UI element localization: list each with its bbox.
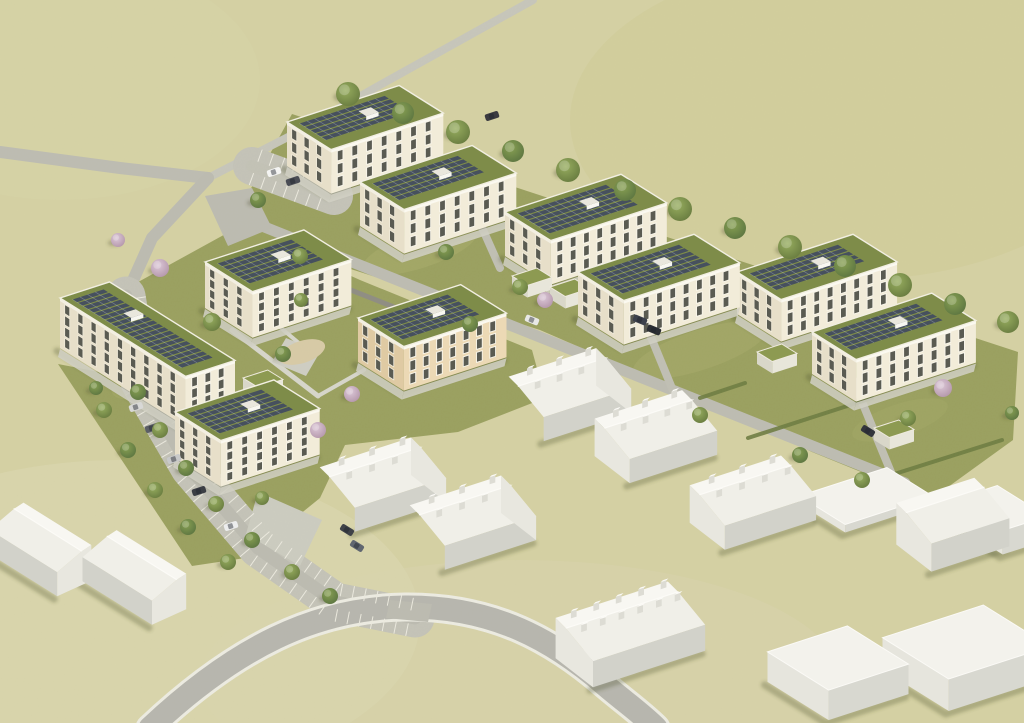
tree-foliage — [275, 346, 291, 362]
window — [437, 351, 442, 362]
window — [684, 297, 689, 308]
window — [477, 351, 482, 362]
tree — [900, 410, 916, 426]
tree-highlight — [559, 160, 570, 171]
tree-foliage — [250, 192, 266, 208]
tree-highlight — [671, 199, 682, 210]
window — [484, 186, 489, 197]
window — [710, 301, 715, 312]
window — [484, 212, 489, 223]
window — [670, 301, 675, 312]
window — [571, 263, 576, 274]
tree-highlight — [246, 534, 253, 541]
window — [828, 287, 833, 298]
tree-highlight — [539, 294, 546, 301]
tree-foliage — [151, 259, 169, 277]
window — [788, 325, 793, 336]
window — [854, 303, 859, 314]
window — [469, 217, 474, 228]
tree-foliage — [322, 588, 338, 604]
window — [410, 360, 415, 371]
tree-highlight — [781, 237, 792, 248]
window — [490, 334, 495, 345]
window — [814, 316, 819, 327]
tree-highlight — [113, 234, 119, 240]
window — [455, 222, 460, 233]
window — [477, 338, 482, 349]
tree-foliage — [934, 379, 952, 397]
tree-foliage — [220, 554, 236, 570]
window — [684, 284, 689, 295]
tree — [208, 496, 224, 512]
tree — [203, 313, 221, 331]
tree-highlight — [794, 449, 801, 456]
tree — [512, 279, 528, 295]
window — [946, 333, 951, 344]
window — [877, 380, 882, 391]
tree-foliage — [537, 292, 553, 308]
window — [637, 228, 642, 239]
window — [382, 149, 387, 160]
window — [890, 351, 895, 362]
window — [724, 284, 729, 295]
window — [841, 283, 846, 294]
window — [932, 337, 937, 348]
tree-foliage — [120, 442, 136, 458]
window — [637, 215, 642, 226]
window — [788, 300, 793, 311]
tree-foliage — [244, 532, 260, 548]
tree — [336, 82, 360, 106]
window — [411, 139, 416, 150]
window — [651, 211, 656, 222]
tree-highlight — [210, 498, 217, 505]
tree-foliage — [147, 482, 163, 498]
window — [192, 377, 197, 387]
tree — [220, 554, 236, 570]
tree-highlight — [257, 492, 263, 498]
window — [657, 318, 662, 329]
window — [410, 373, 415, 384]
tree — [244, 532, 260, 548]
window — [411, 152, 416, 163]
window — [697, 305, 702, 316]
tree-foliage — [203, 313, 221, 331]
tree-highlight — [1007, 407, 1013, 413]
window — [424, 343, 429, 354]
window — [382, 162, 387, 173]
tree-highlight — [286, 566, 293, 573]
tree — [462, 316, 478, 332]
window — [450, 334, 455, 345]
window — [814, 304, 819, 315]
window — [854, 291, 859, 302]
tree-highlight — [149, 484, 156, 491]
window — [724, 297, 729, 308]
tree — [692, 407, 708, 423]
tree-foliage — [130, 384, 146, 400]
window — [801, 296, 806, 307]
window — [440, 213, 445, 224]
window — [918, 354, 923, 365]
tree — [668, 197, 692, 221]
tree-foliage — [89, 381, 103, 395]
window — [425, 231, 430, 242]
tree — [250, 192, 266, 208]
tree-highlight — [464, 318, 471, 325]
blossom-tree — [344, 386, 360, 402]
tree-highlight — [891, 275, 902, 286]
tree-highlight — [947, 295, 957, 305]
tree-foliage — [512, 279, 528, 295]
window — [877, 368, 882, 379]
tree-foliage — [178, 460, 194, 476]
tree — [294, 293, 308, 307]
tree-foliage — [778, 235, 802, 259]
window — [854, 278, 859, 289]
tree-highlight — [936, 381, 944, 389]
window — [338, 150, 343, 161]
window — [469, 204, 474, 215]
window — [477, 325, 482, 336]
tree-foliage — [668, 197, 692, 221]
window — [352, 171, 357, 182]
window — [557, 267, 562, 278]
window — [411, 236, 416, 247]
tree-highlight — [449, 122, 460, 133]
window — [881, 270, 886, 281]
aerial-rendering-canvas — [0, 0, 1024, 723]
window — [440, 226, 445, 237]
window — [624, 232, 629, 243]
tree-foliage — [462, 316, 478, 332]
tree — [130, 384, 146, 400]
window — [828, 312, 833, 323]
window — [557, 254, 562, 265]
tree-highlight — [252, 194, 259, 201]
window — [710, 275, 715, 286]
blossom-tree — [151, 259, 169, 277]
window — [425, 205, 430, 216]
tree-foliage — [96, 402, 112, 418]
window — [464, 343, 469, 354]
window — [499, 207, 504, 218]
window — [352, 145, 357, 156]
tree — [284, 564, 300, 580]
window — [868, 286, 873, 297]
window — [597, 254, 602, 265]
tree-foliage — [944, 293, 966, 315]
window — [918, 367, 923, 378]
tree-highlight — [182, 521, 189, 528]
window — [584, 258, 589, 269]
tree-highlight — [727, 219, 737, 229]
tree — [834, 255, 856, 277]
tree — [292, 248, 308, 264]
tree — [854, 472, 870, 488]
window — [464, 356, 469, 367]
window — [219, 379, 224, 389]
window — [890, 376, 895, 387]
window — [881, 294, 886, 305]
window — [890, 363, 895, 374]
window — [697, 279, 702, 290]
window — [450, 347, 455, 358]
window — [426, 134, 431, 145]
window — [338, 163, 343, 174]
tree-highlight — [1000, 313, 1010, 323]
window — [657, 292, 662, 303]
tree — [556, 158, 580, 182]
blossom-tree — [537, 292, 553, 308]
tree — [120, 442, 136, 458]
tree — [178, 460, 194, 476]
window — [424, 369, 429, 380]
tree-foliage — [888, 273, 912, 297]
window — [367, 153, 372, 164]
tree — [275, 346, 291, 362]
window — [571, 250, 576, 261]
window — [469, 191, 474, 202]
window — [584, 232, 589, 243]
tree-foliage — [446, 120, 470, 144]
tree-highlight — [902, 412, 909, 419]
tree-foliage — [614, 179, 636, 201]
tree-highlight — [180, 462, 187, 469]
window — [651, 224, 656, 235]
tree-foliage — [792, 447, 808, 463]
tree — [997, 311, 1019, 333]
tree — [152, 422, 168, 438]
tree-foliage — [1005, 406, 1019, 420]
window — [863, 385, 868, 396]
site-plan-rendering: Aerial bird's-eye 3D architectural rende… — [0, 0, 1024, 723]
tree-highlight — [222, 556, 229, 563]
window — [424, 356, 429, 367]
window — [396, 144, 401, 155]
window — [959, 329, 964, 340]
window — [499, 194, 504, 205]
tree-foliage — [111, 233, 125, 247]
window — [946, 345, 951, 356]
tree-foliage — [724, 217, 746, 239]
tree-foliage — [392, 102, 414, 124]
window — [192, 388, 197, 398]
window — [624, 245, 629, 256]
tree-highlight — [154, 424, 161, 431]
window — [450, 360, 455, 371]
tree-highlight — [514, 281, 521, 288]
tree-foliage — [180, 519, 196, 535]
tree-foliage — [284, 564, 300, 580]
window — [684, 310, 689, 321]
tree-foliage — [997, 311, 1019, 333]
window — [490, 321, 495, 332]
tree — [614, 179, 636, 201]
window — [904, 346, 909, 357]
window — [657, 305, 662, 316]
tree-foliage — [336, 82, 360, 106]
window — [437, 338, 442, 349]
tree — [724, 217, 746, 239]
window — [863, 360, 868, 371]
window — [932, 350, 937, 361]
tree — [96, 402, 112, 418]
tree-highlight — [296, 294, 302, 300]
window — [801, 308, 806, 319]
window — [440, 200, 445, 211]
tree-highlight — [312, 424, 319, 431]
tree-highlight — [694, 409, 701, 416]
window — [597, 228, 602, 239]
tree-highlight — [98, 404, 105, 411]
tree — [392, 102, 414, 124]
tree-highlight — [277, 348, 284, 355]
window — [828, 299, 833, 310]
window — [437, 364, 442, 375]
window — [382, 136, 387, 147]
tree-highlight — [505, 142, 515, 152]
window — [426, 147, 431, 158]
window — [410, 347, 415, 358]
tree-highlight — [617, 181, 627, 191]
window — [788, 312, 793, 323]
window — [611, 237, 616, 248]
tree-highlight — [153, 261, 161, 269]
tree — [502, 140, 524, 162]
tree — [322, 588, 338, 604]
window — [426, 121, 431, 132]
window — [724, 271, 729, 282]
window — [651, 237, 656, 248]
window — [918, 342, 923, 353]
tree — [944, 293, 966, 315]
window — [411, 210, 416, 221]
window — [584, 245, 589, 256]
window — [841, 295, 846, 306]
tree-highlight — [205, 315, 213, 323]
window — [571, 237, 576, 248]
window — [367, 166, 372, 177]
window — [597, 241, 602, 252]
tree-foliage — [310, 422, 326, 438]
tree-foliage — [900, 410, 916, 426]
window — [877, 355, 882, 366]
tree — [888, 273, 912, 297]
window — [411, 126, 416, 137]
window — [206, 372, 211, 382]
window — [557, 241, 562, 252]
window — [352, 158, 357, 169]
window — [868, 299, 873, 310]
window — [630, 301, 635, 312]
tree — [147, 482, 163, 498]
tree-foliage — [344, 386, 360, 402]
blossom-tree — [934, 379, 952, 397]
tree — [89, 381, 103, 395]
window — [338, 176, 343, 187]
tree-foliage — [255, 491, 269, 505]
window — [219, 368, 224, 378]
window — [411, 223, 416, 234]
window — [868, 274, 873, 285]
tree — [446, 120, 470, 144]
tree-highlight — [395, 104, 405, 114]
window — [396, 157, 401, 168]
window — [814, 291, 819, 302]
blossom-tree — [310, 422, 326, 438]
tree-foliage — [692, 407, 708, 423]
window — [904, 371, 909, 382]
tree-foliage — [292, 248, 308, 264]
tree-highlight — [346, 388, 353, 395]
window — [455, 209, 460, 220]
window — [630, 327, 635, 338]
window — [697, 292, 702, 303]
window — [959, 341, 964, 352]
tree-highlight — [339, 84, 350, 95]
tree — [180, 519, 196, 535]
tree-highlight — [294, 250, 301, 257]
window — [624, 219, 629, 230]
window — [670, 314, 675, 325]
tree — [255, 491, 269, 505]
tree-foliage — [854, 472, 870, 488]
tree — [778, 235, 802, 259]
window — [946, 358, 951, 369]
window — [455, 196, 460, 207]
window — [932, 362, 937, 373]
window — [490, 347, 495, 358]
window — [801, 320, 806, 331]
window — [841, 307, 846, 318]
window — [881, 282, 886, 293]
window — [710, 288, 715, 299]
window — [644, 297, 649, 308]
window — [959, 353, 964, 364]
window — [499, 181, 504, 192]
tree — [792, 447, 808, 463]
tree — [1005, 406, 1019, 420]
window — [637, 241, 642, 252]
tree — [438, 244, 454, 260]
window — [863, 372, 868, 383]
window — [396, 131, 401, 142]
window — [367, 140, 372, 151]
tree-highlight — [91, 382, 97, 388]
tree-foliage — [438, 244, 454, 260]
tree-foliage — [502, 140, 524, 162]
tree-highlight — [324, 590, 331, 597]
tree-highlight — [122, 444, 129, 451]
tree-foliage — [208, 496, 224, 512]
window — [206, 384, 211, 394]
window — [611, 250, 616, 261]
tree-foliage — [834, 255, 856, 277]
window — [670, 288, 675, 299]
window — [904, 359, 909, 370]
tree-foliage — [152, 422, 168, 438]
tree-foliage — [294, 293, 308, 307]
tree-highlight — [132, 386, 139, 393]
tree-highlight — [856, 474, 863, 481]
tree-highlight — [440, 246, 447, 253]
tree-highlight — [837, 257, 847, 267]
window — [425, 218, 430, 229]
window — [484, 199, 489, 210]
tree-foliage — [556, 158, 580, 182]
blossom-tree — [111, 233, 125, 247]
